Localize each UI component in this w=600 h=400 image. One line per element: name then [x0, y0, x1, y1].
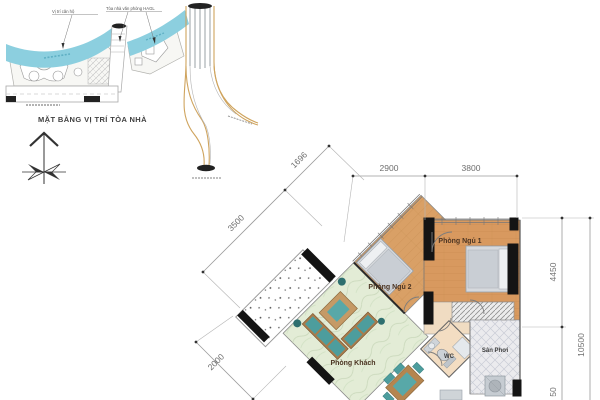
washing-machine — [485, 376, 505, 396]
site-plan-title: MẶT BẰNG VỊ TRÍ TÒA NHÀ — [38, 115, 147, 124]
road-hatch-end-left — [6, 96, 16, 102]
wall-chunk-bottom-right — [513, 380, 521, 396]
bedroom2-label: Phòng Ngủ 2 — [368, 284, 411, 291]
road-hatch-end-mid — [84, 96, 100, 102]
callout-left-label: Vị trí căn hộ — [52, 9, 75, 14]
bedroom1-bed — [466, 246, 510, 292]
wall-chunk-bed1-right — [508, 244, 518, 294]
bedroom1-label: Phòng Ngủ 1 — [438, 238, 481, 245]
ramp-end-cap — [197, 165, 215, 171]
site-hatch-zone — [88, 58, 110, 84]
highway-label-mark — [228, 116, 252, 124]
highway-bridge — [184, 3, 258, 178]
site-plan: Vị trí căn hộ Tòa nhà văn phòng HAGL MẶT… — [6, 3, 258, 184]
wall-chunk-bed1-topleft — [424, 218, 434, 260]
laundry-label: Sân Phơi — [482, 348, 509, 354]
wc-label: WC — [444, 354, 455, 360]
apartment-plan: Phòng Ngủ 1 Phòng Ngủ 2 Phòng Khách WC S… — [195, 145, 594, 400]
wardrobe-hatch — [452, 302, 514, 322]
dim-right-partial: 50 — [548, 387, 558, 397]
dim-top-left: 2900 — [380, 163, 399, 173]
north-compass-icon — [22, 133, 66, 184]
dim-diag-upper: 1696 — [289, 149, 310, 170]
dim-top-right: 3800 — [462, 163, 481, 173]
dim-right-total: 10500 — [576, 333, 586, 357]
wall-chunk-bed1-topright — [510, 218, 518, 230]
callout-right-label: Tòa nhà văn phòng HAGL — [106, 6, 155, 11]
dim-diag-lower: 3500 — [226, 212, 247, 233]
floorplan-drawing: Vị trí căn hộ Tòa nhà văn phòng HAGL MẶT… — [0, 0, 600, 400]
bedroom1-block — [424, 217, 520, 334]
wall-chunk-bed1-left — [424, 292, 433, 324]
living-room-label: Phòng Khách — [330, 360, 375, 367]
dim-right-inner: 4450 — [548, 262, 558, 281]
kitchen-counter-partial — [440, 390, 462, 400]
